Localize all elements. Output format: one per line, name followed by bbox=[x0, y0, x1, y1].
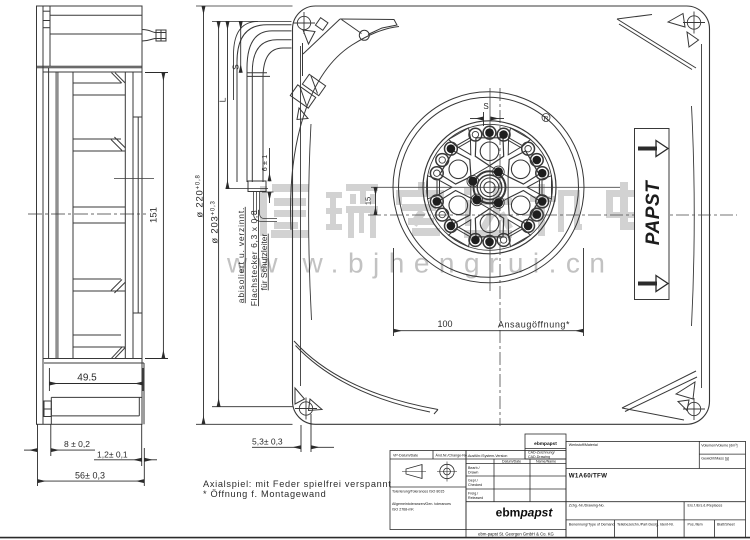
svg-text:49.5: 49.5 bbox=[77, 373, 97, 384]
svg-text:100: 100 bbox=[437, 319, 452, 329]
svg-text:1,2± 0,1: 1,2± 0,1 bbox=[97, 450, 128, 460]
svg-text:Pos./Item: Pos./Item bbox=[688, 523, 703, 527]
svg-text:S: S bbox=[483, 102, 488, 111]
svg-text:für Schutzleiter: für Schutzleiter bbox=[259, 233, 269, 290]
svg-text:* Öffnung f. Montagewand: * Öffnung f. Montagewand bbox=[203, 489, 326, 499]
svg-text:Ansaugöffnung*: Ansaugöffnung* bbox=[498, 320, 570, 330]
svg-text:ebm-papst St. Georgen GmbH & C: ebm-papst St. Georgen GmbH & Co. KG bbox=[478, 532, 554, 537]
svg-text:151: 151 bbox=[149, 207, 160, 223]
svg-text:5,3± 0,3: 5,3± 0,3 bbox=[252, 437, 283, 447]
svg-text:Checked: Checked bbox=[468, 483, 482, 487]
svg-text:Released: Released bbox=[468, 496, 483, 500]
svg-text:L: L bbox=[217, 97, 227, 102]
svg-text:Benennung/Type of Demand: Benennung/Type of Demand bbox=[569, 523, 615, 527]
svg-text:Änd.Nr./Change-No.: Änd.Nr./Change-No. bbox=[436, 454, 468, 458]
svg-text:w.bjhengrui.cn: w.bjhengrui.cn bbox=[302, 248, 615, 279]
svg-text:Axialspiel: mit Feder spiel: Axialspiel: mit Feder spielfrei verspann… bbox=[203, 479, 392, 489]
svg-text:S: S bbox=[230, 64, 240, 70]
svg-text:Teilebezeichn./Part-Desig.: Teilebezeichn./Part-Desig. bbox=[617, 523, 659, 527]
svg-text:Tolerierung/Tolerances ISO 80: Tolerierung/Tolerances ISO 8015 bbox=[392, 490, 444, 494]
svg-text:CAD-Zeichnung/: CAD-Zeichnung/ bbox=[528, 451, 555, 455]
svg-text:ISO 2768-mK: ISO 2768-mK bbox=[392, 508, 414, 512]
svg-text:ebmpapst: ebmpapst bbox=[534, 441, 557, 447]
svg-text:abisoliert u. verzinnt.: abisoliert u. verzinnt. bbox=[236, 207, 246, 303]
svg-text:Drawn: Drawn bbox=[468, 471, 478, 475]
svg-text:Volumen/Volume [dm³]: Volumen/Volume [dm³] bbox=[701, 444, 737, 448]
svg-text:56± 0,3: 56± 0,3 bbox=[75, 471, 105, 481]
svg-text:6 ± 1: 6 ± 1 bbox=[260, 155, 269, 172]
svg-text:Gewicht/Mass [g]: Gewicht/Mass [g] bbox=[701, 457, 729, 461]
svg-text:Datum/Date: Datum/Date bbox=[502, 459, 521, 463]
svg-text:Ausführ./System-Version: Ausführ./System-Version bbox=[468, 454, 507, 458]
svg-text:Name/Name: Name/Name bbox=[536, 459, 556, 463]
svg-text:Gepr./: Gepr./ bbox=[468, 479, 478, 483]
svg-text:Blatt/Sheet: Blatt/Sheet bbox=[717, 523, 735, 527]
svg-text:Allgemeintoleranzen/Gen. toler: Allgemeintoleranzen/Gen. tolerances bbox=[392, 502, 451, 506]
svg-text:Bearb./: Bearb./ bbox=[468, 466, 480, 470]
svg-text:Ident-Nr.: Ident-Nr. bbox=[660, 523, 674, 527]
svg-text:R: R bbox=[544, 115, 549, 122]
svg-text:PAPST: PAPST bbox=[643, 180, 664, 245]
svg-text:ebmpapst: ebmpapst bbox=[496, 506, 554, 520]
svg-text:Werkstoff/Material: Werkstoff/Material bbox=[569, 443, 598, 447]
svg-text:Flachstecker 6,3 x 0,8: Flachstecker 6,3 x 0,8 bbox=[249, 210, 259, 306]
svg-text:Freig./: Freig./ bbox=[468, 492, 478, 496]
svg-text:Ers.f./Ers.d./Replaces: Ers.f./Ers.d./Replaces bbox=[688, 504, 723, 508]
svg-text:15: 15 bbox=[364, 197, 373, 205]
svg-text:VP-Datum/Date: VP-Datum/Date bbox=[393, 454, 418, 458]
svg-text:Zchg.-Nr./Drawing-No.: Zchg.-Nr./Drawing-No. bbox=[569, 504, 605, 508]
svg-text:W1A60/TFW: W1A60/TFW bbox=[569, 473, 607, 480]
svg-text:8 ± 0,2: 8 ± 0,2 bbox=[64, 439, 90, 449]
